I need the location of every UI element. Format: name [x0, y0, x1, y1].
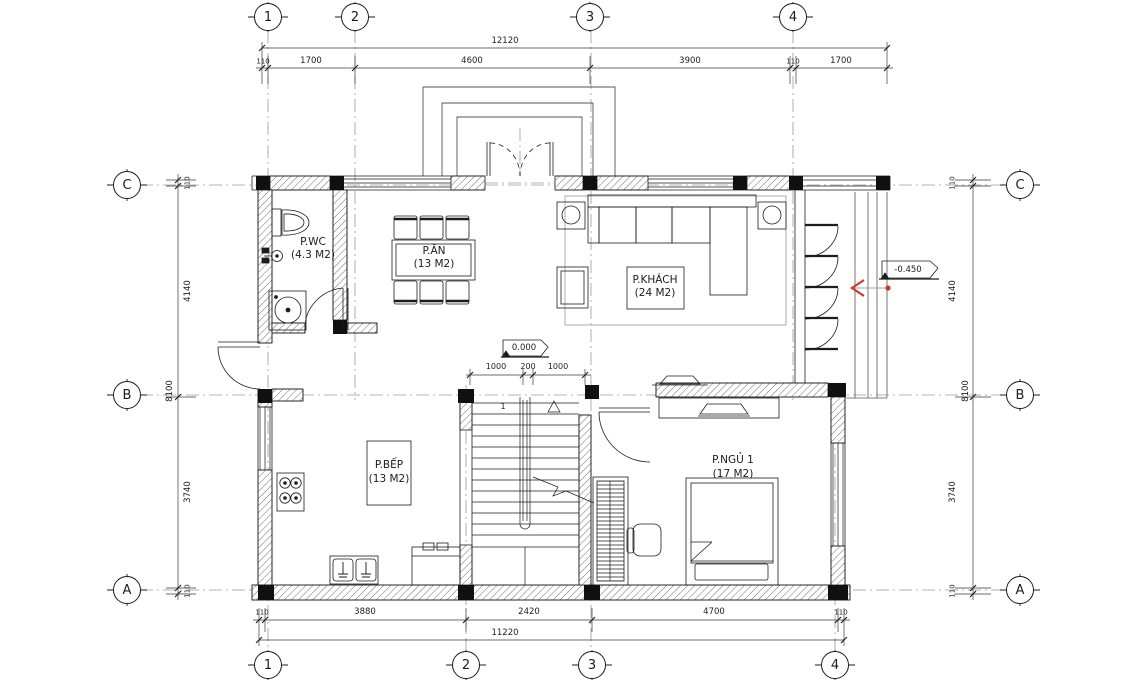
floor-plan-canvas: 1 2 3 4 1 2 3 4 C B A C B A 110 1700 460… [0, 0, 1140, 686]
plan-linework [0, 0, 1140, 686]
chair-symbol [627, 524, 661, 556]
bed-symbol [686, 478, 778, 585]
dim-left-seg-2: 3740 [184, 481, 193, 503]
sink-symbol [330, 556, 378, 584]
dimension-lines [166, 42, 991, 646]
grid-bubble-bottom-1: 1 [254, 651, 282, 679]
room-label-bedroom-name: P.NGỦ 1 [712, 454, 754, 468]
kitchen-counter-symbol [412, 543, 460, 585]
grid-bubble-left-c: C [113, 171, 141, 199]
room-label-dining-name: P.ĂN [422, 245, 445, 259]
dim-bottom-seg-1: 3880 [354, 608, 376, 617]
grid-bubble-left-a: A [113, 576, 141, 604]
wardrobe-symbol [593, 477, 628, 585]
porch-steps [423, 87, 615, 176]
dim-left-seg-0: 110 [185, 176, 192, 189]
dim-bottom-seg-2: 2420 [518, 608, 540, 617]
room-label-kitchen-name: P.BẾP [375, 459, 403, 473]
dim-right-seg-3: 110 [950, 584, 957, 597]
grid-bubble-right-b: B [1006, 381, 1034, 409]
stairs-symbol [472, 397, 594, 585]
grid-bubble-bottom-4: 4 [821, 651, 849, 679]
level-value-terrace: -0.450 [894, 266, 921, 275]
dim-top-seg-4: 110 [786, 59, 799, 66]
dim-right-seg-2: 3740 [949, 481, 958, 503]
dim-top-total: 12120 [491, 37, 518, 46]
grid-bubble-top-4: 4 [779, 3, 807, 31]
dim-right-seg-0: 110 [950, 176, 957, 189]
stair-step-number: 1 [500, 403, 505, 411]
dim-stair-0: 1000 [486, 363, 506, 371]
room-label-wc-name: P.WC [300, 236, 326, 250]
grid-bubble-right-a: A [1006, 576, 1034, 604]
dim-stair-1: 200 [520, 363, 535, 371]
room-label-living-area: (24 M2) [635, 287, 676, 301]
dim-left-seg-1: 4140 [184, 280, 193, 302]
dim-stair-2: 1000 [548, 363, 568, 371]
room-label-kitchen-area: (13 M2) [369, 473, 410, 487]
walls-layer [252, 176, 890, 600]
red-level-arrow [852, 280, 891, 296]
toilet-symbol [272, 209, 309, 236]
level-value-main: 0.000 [512, 344, 536, 353]
grid-bubble-right-c: C [1006, 171, 1034, 199]
grid-bubble-ticks [107, 2, 1040, 680]
room-label-dining-area: (13 M2) [414, 258, 455, 272]
terrace-strip [846, 192, 887, 398]
tv-living-symbol [652, 376, 708, 385]
dim-right-seg-1: 4140 [949, 280, 958, 302]
grid-bubble-top-1: 1 [254, 3, 282, 31]
grid-bubble-bottom-2: 2 [452, 651, 480, 679]
dim-bottom-total: 11220 [491, 629, 518, 638]
grid-bubble-bottom-3: 3 [578, 651, 606, 679]
dim-top-seg-2: 4600 [461, 57, 483, 66]
room-label-bedroom-area: (17 M2) [713, 468, 754, 482]
dim-top-seg-1: 1700 [300, 57, 322, 66]
grid-bubble-top-3: 3 [576, 3, 604, 31]
dim-left-total: 8100 [166, 380, 175, 402]
dim-top-seg-3: 3900 [679, 57, 701, 66]
bedroom-console-symbol [659, 398, 779, 418]
dim-bottom-seg-3: 4700 [703, 608, 725, 617]
grid-bubble-left-b: B [113, 381, 141, 409]
grid-bubble-top-2: 2 [341, 3, 369, 31]
dim-top-seg-5: 1700 [830, 57, 852, 66]
dim-top-seg-0: 110 [256, 59, 269, 66]
dim-right-total: 8100 [962, 380, 971, 402]
dim-bottom-seg-4: 110 [834, 610, 847, 617]
folding-door [805, 225, 838, 350]
dim-left-seg-3: 110 [185, 584, 192, 597]
room-label-wc-area: (4.3 M2) [291, 249, 335, 263]
room-label-living-name: P.KHÁCH [632, 274, 677, 288]
dim-bottom-seg-0: 110 [255, 610, 268, 617]
dimension-ticks [175, 45, 976, 643]
stove-symbol [277, 473, 304, 511]
